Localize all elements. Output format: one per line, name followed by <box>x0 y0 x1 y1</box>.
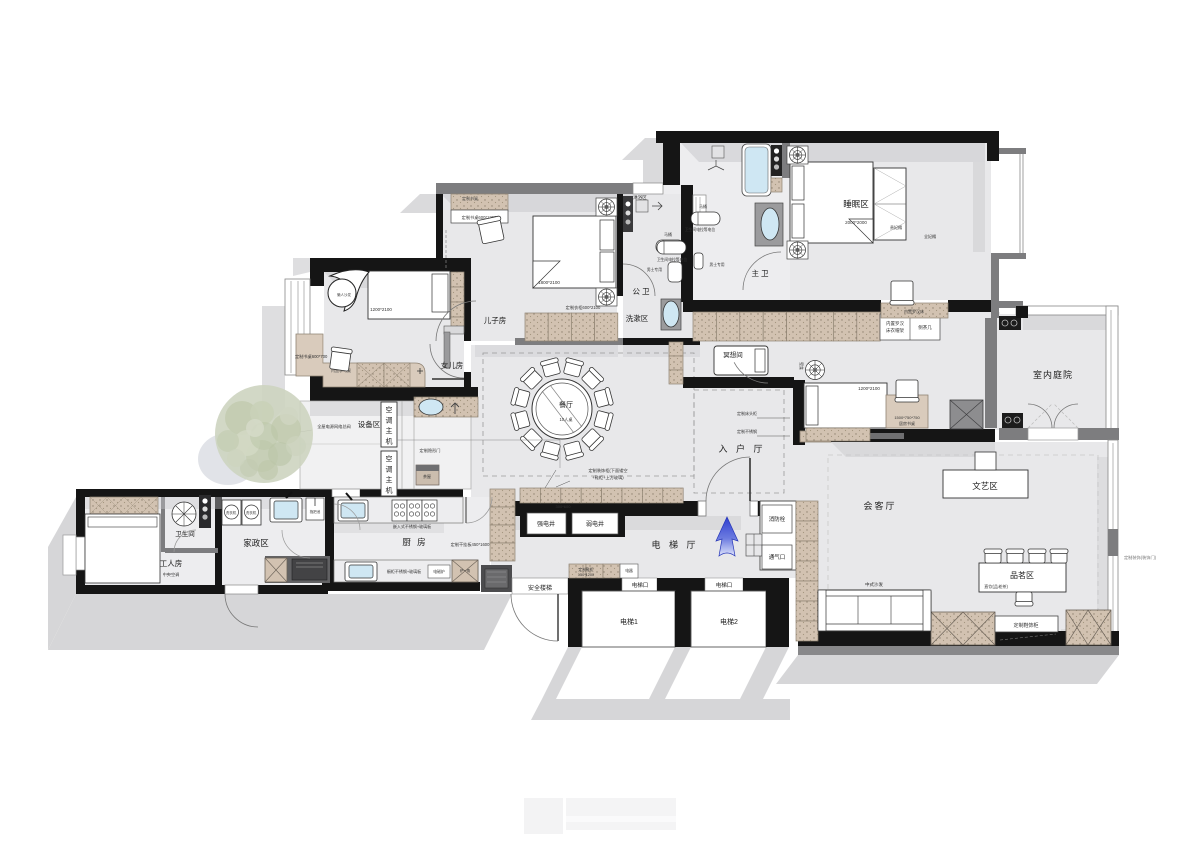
svg-text:嵌入式不锈钢+玻璃板: 嵌入式不锈钢+玻璃板 <box>393 523 431 529</box>
svg-text:内置罗汉: 内置罗汉 <box>886 320 904 327</box>
svg-text:定制鞋饰柜: 定制鞋饰柜 <box>1013 622 1038 629</box>
svg-text:壁龛: 壁龛 <box>799 362 804 370</box>
svg-text:电梯2: 电梯2 <box>720 617 738 626</box>
svg-text:1200*2100: 1200*2100 <box>858 386 880 391</box>
svg-text:电磁炉: 电磁炉 <box>433 569 445 574</box>
svg-text:洗漱区: 洗漱区 <box>626 313 649 323</box>
svg-text:空: 空 <box>386 454 393 463</box>
svg-text:10人桌: 10人桌 <box>559 416 573 423</box>
svg-text:冥想间: 冥想间 <box>723 350 743 359</box>
svg-text:橱柜不锈钢+玻璃板: 橱柜不锈钢+玻璃板 <box>387 568 421 574</box>
svg-text:拖把池: 拖把池 <box>310 509 321 514</box>
svg-text:调: 调 <box>386 465 393 474</box>
svg-text:直饮(品老茶): 直饮(品老茶) <box>984 583 1008 590</box>
svg-text:通气口: 通气口 <box>769 553 786 561</box>
svg-text:定制书桌: 定制书桌 <box>462 195 478 201</box>
svg-text:侧茶几: 侧茶几 <box>918 324 932 331</box>
svg-text:儿子房: 儿子房 <box>484 315 507 325</box>
svg-text:工人房: 工人房 <box>160 558 183 568</box>
svg-text:女儿房: 女儿房 <box>441 360 464 370</box>
svg-text:贵妃榻: 贵妃榻 <box>890 224 902 230</box>
svg-text:餐厅: 餐厅 <box>559 400 573 409</box>
svg-text:强电井: 强电井 <box>537 520 555 528</box>
svg-text:1800*2100: 1800*2100 <box>538 280 560 285</box>
svg-text:室内庭院: 室内庭院 <box>1033 369 1073 380</box>
svg-text:马桶: 马桶 <box>664 231 672 237</box>
svg-text:卫生间电拉等电位: 卫生间电拉等电位 <box>657 257 688 262</box>
svg-text:公 卫: 公 卫 <box>632 287 650 296</box>
svg-text:懒人沙发: 懒人沙发 <box>337 292 351 297</box>
svg-text:电梯口: 电梯口 <box>716 581 733 589</box>
svg-text:内置罗汉床: 内置罗汉床 <box>904 308 924 314</box>
svg-text:床衣帽架: 床衣帽架 <box>886 327 904 334</box>
svg-text:电梯口: 电梯口 <box>632 581 649 589</box>
svg-text:厨 房: 厨 房 <box>402 537 427 547</box>
svg-text:+鞋柜+上方玻璃): +鞋柜+上方玻璃) <box>592 474 624 481</box>
svg-text:机: 机 <box>386 486 393 495</box>
svg-text:设备区: 设备区 <box>358 419 381 429</box>
svg-text:男士专用: 男士专用 <box>709 262 724 267</box>
svg-text:品茗区: 品茗区 <box>1010 570 1034 580</box>
svg-text:全屋电源网络总阀: 全屋电源网络总阀 <box>317 423 351 430</box>
svg-text:调: 调 <box>386 416 393 425</box>
svg-text:消防栓: 消防栓 <box>769 515 786 523</box>
svg-text:电梯1: 电梯1 <box>620 617 638 626</box>
svg-text:定制隐形门: 定制隐形门 <box>420 447 441 454</box>
svg-text:马桶: 马桶 <box>699 203 707 209</box>
svg-text:空: 空 <box>386 405 393 414</box>
svg-text:300*600: 300*600 <box>556 504 572 509</box>
svg-text:男士专用: 男士专用 <box>647 267 662 272</box>
svg-text:文艺区: 文艺区 <box>972 481 998 491</box>
svg-text:定制鞋柜: 定制鞋柜 <box>578 567 593 572</box>
svg-text:电器: 电器 <box>625 568 633 573</box>
svg-text:主: 主 <box>386 475 393 484</box>
svg-text:定制装饰(装饰门): 定制装饰(装饰门) <box>1124 554 1157 561</box>
svg-text:主 卫: 主 卫 <box>751 268 769 278</box>
svg-text:居房书桌: 居房书桌 <box>899 420 915 426</box>
svg-text:定制干挂板450*1600: 定制干挂板450*1600 <box>451 541 491 548</box>
svg-text:1500*750*750: 1500*750*750 <box>894 415 920 420</box>
svg-text:家政区: 家政区 <box>243 538 269 548</box>
svg-text:炉一角: 炉一角 <box>460 568 471 573</box>
svg-text:定制装饰柜(下面镂空: 定制装饰柜(下面镂空 <box>588 467 627 474</box>
svg-text:150*1200: 150*1200 <box>578 573 594 577</box>
svg-text:主: 主 <box>386 426 393 435</box>
svg-text:中式沙发: 中式沙发 <box>865 581 883 588</box>
svg-text:1200*2100: 1200*2100 <box>370 307 392 312</box>
svg-text:全妃榻: 全妃榻 <box>924 233 936 239</box>
svg-text:弱电井: 弱电井 <box>586 520 604 528</box>
svg-text:电 梯 厅: 电 梯 厅 <box>651 539 698 550</box>
svg-text:茶屋: 茶屋 <box>423 473 431 479</box>
svg-text:入 户 厅: 入 户 厅 <box>718 443 765 454</box>
svg-text:会客厅: 会客厅 <box>863 500 896 511</box>
svg-text:睡眠区: 睡眠区 <box>843 199 869 209</box>
svg-text:洗衣机: 洗衣机 <box>246 510 257 515</box>
svg-text:2000*2000: 2000*2000 <box>845 220 867 225</box>
svg-text:定制书桌600*700: 定制书桌600*700 <box>295 353 328 360</box>
svg-text:中央空调: 中央空调 <box>163 571 180 578</box>
svg-text:定制衣柜600*2100: 定制衣柜600*2100 <box>566 304 601 311</box>
svg-text:机: 机 <box>386 437 393 446</box>
svg-text:定制床头柜: 定制床头柜 <box>737 410 757 416</box>
svg-text:洗衣机: 洗衣机 <box>226 510 237 515</box>
svg-text:安全楼梯: 安全楼梯 <box>528 584 552 592</box>
svg-text:定制不锈钢: 定制不锈钢 <box>737 428 757 434</box>
svg-text:卫生间电拉等电位: 卫生间电拉等电位 <box>685 227 716 232</box>
